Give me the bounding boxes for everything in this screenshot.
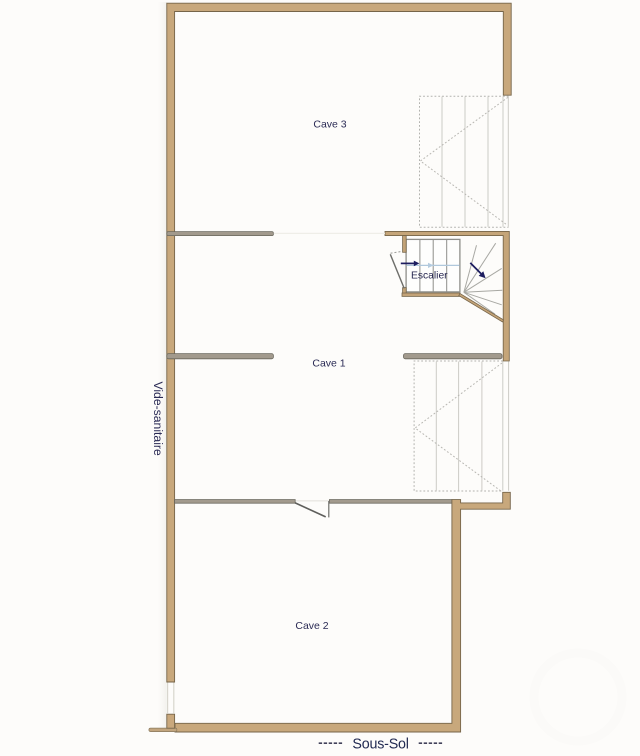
svg-text:Escalier: Escalier	[411, 271, 448, 282]
svg-text:Vide-sanitaire: Vide-sanitaire	[151, 381, 165, 456]
svg-text:Cave 2: Cave 2	[295, 620, 328, 632]
svg-text:Cave 3: Cave 3	[313, 119, 346, 131]
svg-text:Sous-Sol: Sous-Sol	[352, 737, 408, 753]
svg-text:Cave 1: Cave 1	[312, 358, 345, 370]
